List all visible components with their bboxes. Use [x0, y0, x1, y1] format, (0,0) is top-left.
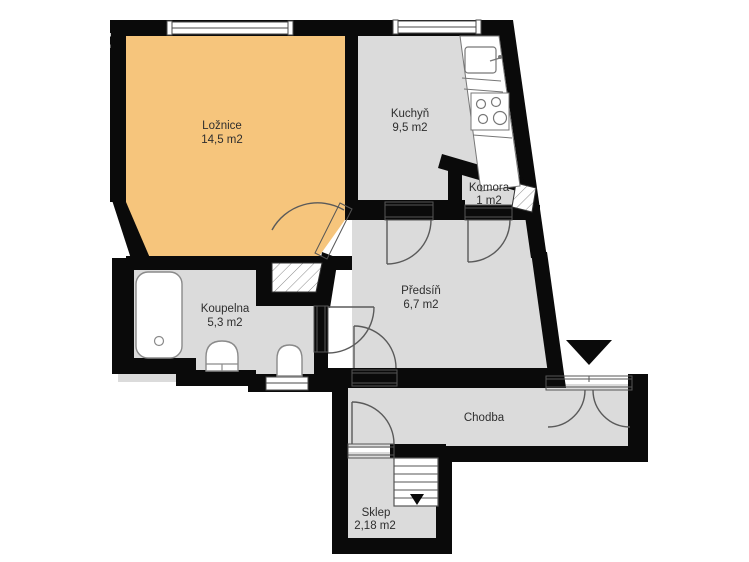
entrance-arrow-icon — [566, 340, 612, 365]
label-komora-name: Komora — [469, 182, 510, 194]
floor-plan: Ložnice 14,5 m2 Kuchyň 9,5 m2 Komora 1 m… — [0, 0, 749, 562]
label-chodba-name: Chodba — [464, 412, 505, 424]
room-predsin — [352, 220, 558, 386]
bathtub — [136, 272, 182, 358]
label-predsin-name: Předsíň — [401, 285, 441, 297]
ventilation-shaft-koupelna — [272, 263, 322, 292]
floor-plan-page: Ložnice 14,5 m2 Kuchyň 9,5 m2 Komora 1 m… — [0, 0, 749, 562]
toilet — [277, 345, 302, 376]
washbasin — [206, 341, 238, 371]
label-loznice-area: 14,5 m2 — [201, 134, 243, 146]
window-koupelna — [266, 377, 308, 390]
label-predsin-area: 6,7 m2 — [403, 299, 438, 311]
staircase-down — [394, 458, 438, 506]
ventilation-shaft-komora — [512, 183, 536, 212]
stove — [471, 93, 509, 130]
label-koupelna-area: 5,3 m2 — [207, 317, 242, 329]
label-kuchyn-name: Kuchyň — [391, 108, 429, 120]
label-sklep-area: 2,18 m2 — [354, 520, 396, 532]
window-loznice — [167, 21, 293, 35]
room-fills — [118, 28, 634, 542]
window-kuchyn — [393, 20, 481, 34]
label-sklep-name: Sklep — [362, 507, 391, 519]
label-komora-area: 1 m2 — [476, 195, 502, 207]
label-kuchyn-area: 9,5 m2 — [392, 122, 427, 134]
watermark-letter-2: t — [98, 22, 111, 55]
label-loznice-name: Ložnice — [202, 120, 242, 132]
label-koupelna-name: Koupelna — [201, 303, 250, 315]
watermark: e t — [96, 0, 112, 55]
